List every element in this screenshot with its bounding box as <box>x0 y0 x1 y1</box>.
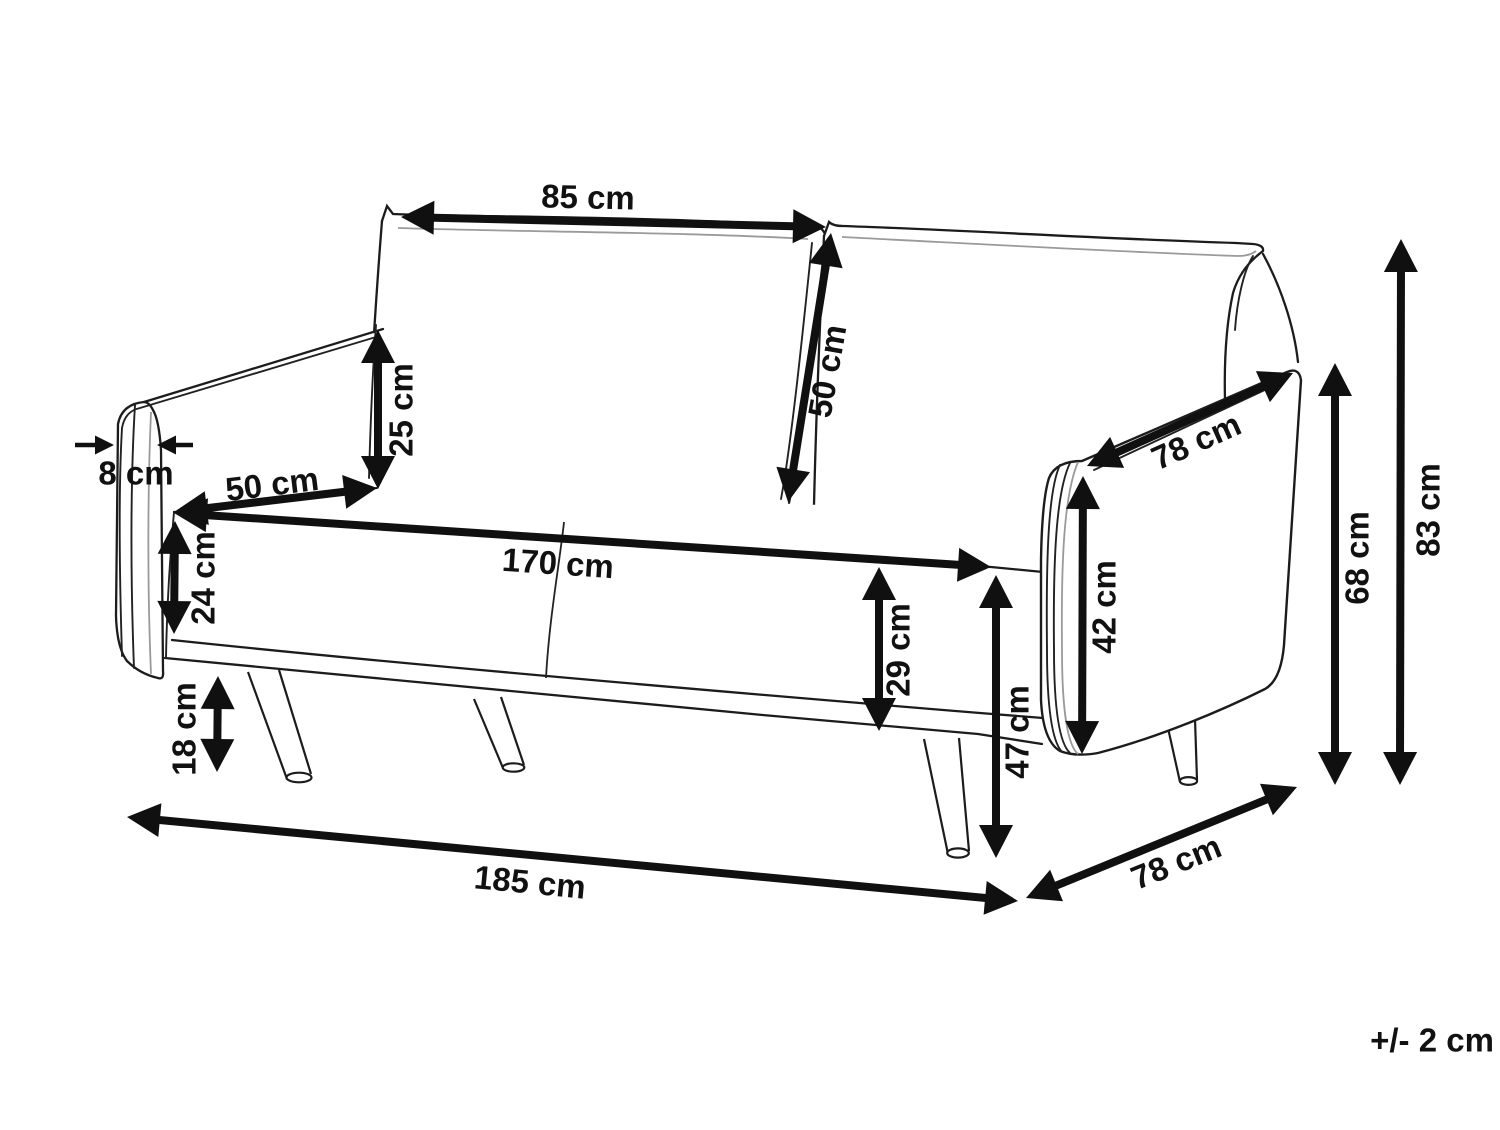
svg-text:47 cm: 47 cm <box>999 685 1036 779</box>
svg-text:24 cm: 24 cm <box>185 531 222 625</box>
svg-text:42 cm: 42 cm <box>1086 560 1123 654</box>
svg-text:68 cm: 68 cm <box>1339 511 1376 605</box>
svg-text:+/- 2 cm: +/- 2 cm <box>1370 1022 1494 1059</box>
svg-text:29 cm: 29 cm <box>880 603 917 697</box>
svg-text:85 cm: 85 cm <box>541 177 635 216</box>
svg-text:170 cm: 170 cm <box>501 541 615 585</box>
svg-text:25 cm: 25 cm <box>383 363 420 457</box>
svg-text:18 cm: 18 cm <box>166 682 203 776</box>
svg-text:8 cm: 8 cm <box>98 455 173 492</box>
svg-text:83 cm: 83 cm <box>1410 463 1447 557</box>
